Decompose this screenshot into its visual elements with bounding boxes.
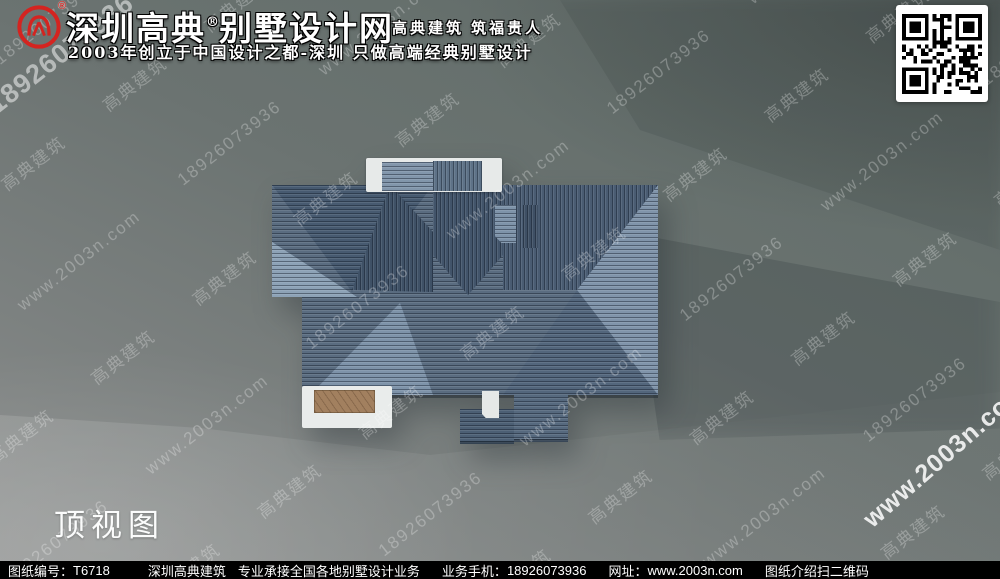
footer-bar: 图纸编号： T6718 深圳高典建筑 专业承接全国各地别墅设计业务 业务手机： … — [0, 561, 1000, 579]
chimney — [482, 391, 499, 418]
roof-plan-render — [260, 155, 660, 445]
footer-phone-label: 业务手机： — [442, 561, 507, 579]
brand-title-reg-mark: ® — [206, 15, 219, 30]
roof-vent-dark — [523, 205, 538, 248]
view-label: 顶视图 — [54, 500, 165, 545]
footer-website-value: www.2003n.com — [647, 563, 742, 578]
roof-vent-light — [495, 205, 516, 243]
footer-service: 专业承接全国各地别墅设计业务 — [238, 561, 420, 579]
dormer-roof-right — [433, 161, 482, 191]
building-cast-shadow — [630, 210, 1000, 440]
footer-qr-note: 图纸介绍扫二维码 — [765, 561, 869, 579]
brand-subtitle: 2003年创立于中国设计之都-深圳 只做高端经典别墅设计 — [68, 39, 533, 63]
footer-company: 深圳高典建筑 — [148, 561, 226, 579]
page: 18926073936 www.2003n.com 18926073936 ww… — [0, 0, 1000, 579]
extension-roof-right — [514, 393, 568, 442]
drawing-number-label: 图纸编号： — [8, 561, 73, 579]
footer-phone-value: 18926073936 — [507, 563, 587, 578]
logo-reg-mark: ® — [58, 0, 66, 12]
wood-deck — [314, 390, 375, 413]
brand-logo-icon — [16, 4, 62, 50]
dormer-roof-left — [382, 162, 433, 191]
qr-code — [896, 5, 988, 102]
footer-website-label: 网址： — [608, 561, 647, 579]
drawing-number-value: T6718 — [73, 563, 110, 578]
qr-code-pattern — [902, 12, 982, 96]
brand-slogan: 高典建筑 筑福贵人 — [392, 17, 543, 38]
header-bar: ® 深圳高典®别墅设计网 高典建筑 筑福贵人 2003年创立于中国设计之都-深圳… — [0, 0, 1000, 62]
